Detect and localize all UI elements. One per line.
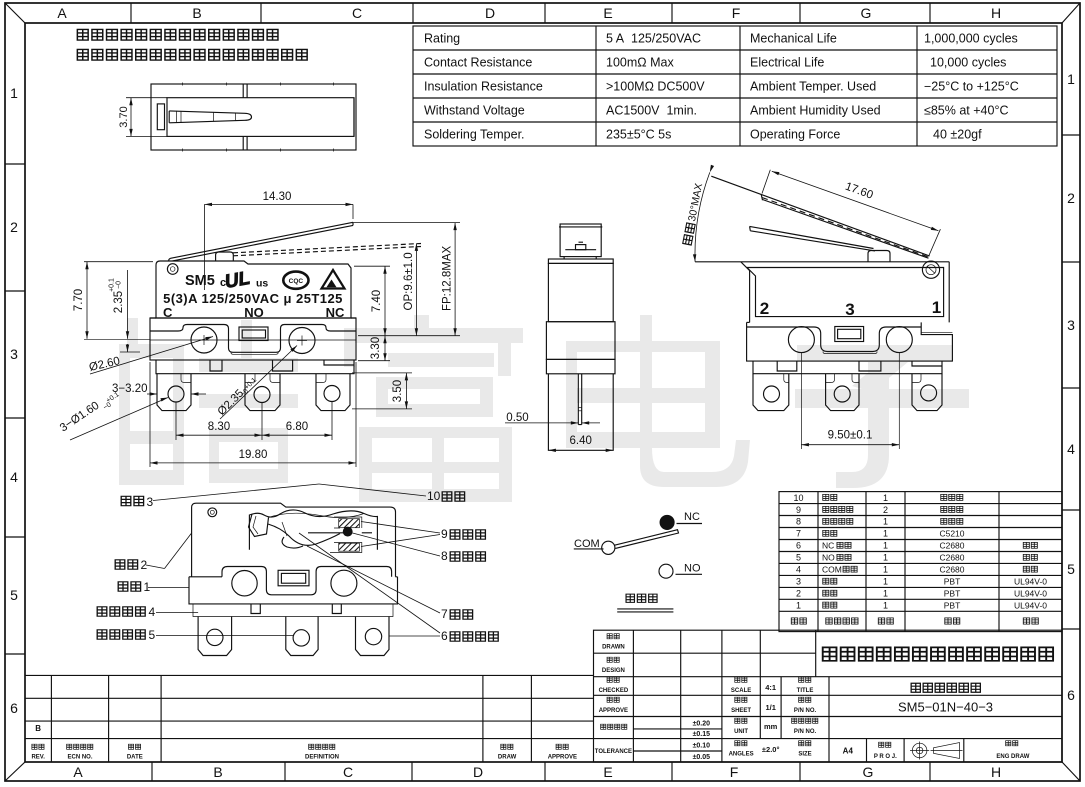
svg-text:ENG DRAW: ENG DRAW: [996, 754, 1029, 760]
svg-text:10: 10: [793, 493, 803, 503]
svg-text:us: us: [256, 278, 268, 290]
svg-text:Withstand Voltage: Withstand Voltage: [424, 104, 525, 118]
svg-text:A: A: [73, 764, 83, 780]
svg-text:DESIGN: DESIGN: [602, 668, 625, 674]
svg-text:NC: NC: [684, 511, 700, 523]
svg-text:C2680: C2680: [939, 565, 964, 575]
svg-text:CHECKED: CHECKED: [599, 688, 629, 694]
svg-text:NC: NC: [822, 541, 834, 551]
svg-text:Insulation Resistance: Insulation Resistance: [424, 80, 543, 94]
svg-text:H: H: [991, 5, 1001, 21]
svg-text:1/1: 1/1: [765, 703, 775, 712]
svg-text:3.70: 3.70: [118, 106, 130, 127]
svg-text:3: 3: [10, 346, 18, 362]
svg-text:4: 4: [1067, 441, 1075, 457]
svg-text:±0.20: ±0.20: [693, 721, 711, 728]
svg-text:1,000,000 cycles: 1,000,000 cycles: [924, 32, 1018, 46]
svg-text:1: 1: [10, 85, 18, 101]
svg-text:UL94V-0: UL94V-0: [1014, 577, 1047, 587]
svg-text:ANGLES: ANGLES: [729, 752, 754, 758]
svg-text:E: E: [603, 764, 612, 780]
svg-text:H: H: [991, 764, 1001, 780]
svg-text:F: F: [732, 5, 741, 21]
svg-text:9.50±0.1: 9.50±0.1: [828, 430, 873, 442]
svg-text:G: G: [861, 5, 872, 21]
svg-text:Soldering Temper.: Soldering Temper.: [424, 128, 525, 142]
svg-text:>100MΩ DC500V: >100MΩ DC500V: [606, 80, 705, 94]
svg-text:DRAWN: DRAWN: [602, 645, 625, 651]
svg-text:1: 1: [1067, 71, 1075, 87]
svg-text:APPROVE: APPROVE: [599, 708, 628, 714]
svg-text:235±5°C 5s: 235±5°C 5s: [606, 128, 671, 142]
svg-text:PBT: PBT: [944, 589, 961, 599]
svg-text:2: 2: [883, 505, 888, 515]
svg-text:1: 1: [883, 493, 888, 503]
svg-text:P/N NO.: P/N NO.: [794, 708, 817, 714]
svg-text:0.50: 0.50: [506, 412, 528, 424]
svg-text:8: 8: [441, 549, 448, 563]
svg-text:6: 6: [1067, 687, 1075, 703]
svg-text:2: 2: [760, 299, 769, 318]
svg-text:1: 1: [883, 553, 888, 563]
svg-text:Electrical Life: Electrical Life: [750, 56, 824, 70]
svg-text:C: C: [343, 764, 353, 780]
svg-text:100mΩ Max: 100mΩ Max: [606, 56, 674, 70]
svg-text:1: 1: [883, 601, 888, 611]
svg-text:−25°C to +125°C: −25°C to +125°C: [924, 80, 1019, 94]
svg-text:C: C: [352, 5, 362, 21]
svg-text:8.30: 8.30: [208, 421, 230, 433]
svg-text:19.80: 19.80: [239, 449, 268, 461]
svg-text:5(3)A 125/250VAC μ 25T125: 5(3)A 125/250VAC μ 25T125: [163, 291, 343, 306]
svg-text:2.35: 2.35: [113, 291, 125, 313]
svg-text:1: 1: [883, 565, 888, 575]
svg-text:1: 1: [883, 589, 888, 599]
svg-text:1: 1: [883, 541, 888, 551]
svg-text:3.30: 3.30: [370, 337, 382, 359]
svg-text:4:1: 4:1: [765, 683, 776, 692]
svg-text:APPROVE: APPROVE: [548, 755, 577, 761]
svg-text:F: F: [730, 764, 739, 780]
svg-text:Ambient Temper. Used: Ambient Temper. Used: [750, 80, 876, 94]
svg-text:9: 9: [796, 505, 801, 515]
svg-text:±0.05: ±0.05: [693, 754, 711, 761]
svg-text:3: 3: [845, 300, 854, 319]
svg-text:SM5: SM5: [185, 273, 215, 289]
svg-text:40 ±20gf: 40 ±20gf: [933, 128, 982, 142]
svg-text:7.70: 7.70: [73, 289, 85, 311]
svg-text:Operating Force: Operating Force: [750, 128, 840, 142]
svg-text:B: B: [35, 724, 41, 733]
svg-text:1: 1: [144, 580, 151, 594]
svg-text:DRAW: DRAW: [498, 755, 517, 761]
svg-text:PBT: PBT: [944, 601, 961, 611]
svg-text:5: 5: [1067, 561, 1075, 577]
svg-text:2: 2: [796, 589, 801, 599]
svg-text:5: 5: [796, 553, 801, 563]
svg-text:+0.1: +0.1: [109, 278, 116, 292]
svg-text:PBT: PBT: [944, 577, 961, 587]
svg-text:4: 4: [149, 605, 156, 619]
svg-text:−0: −0: [116, 281, 123, 289]
svg-text:6: 6: [441, 629, 448, 643]
svg-text:P R O J.: P R O J.: [874, 754, 897, 760]
svg-text:mm: mm: [764, 722, 778, 731]
svg-text:CQC: CQC: [289, 278, 304, 285]
svg-text:UL: UL: [223, 268, 252, 293]
svg-text:1: 1: [883, 577, 888, 587]
svg-text:±0.10: ±0.10: [693, 743, 711, 750]
svg-text:6.40: 6.40: [570, 435, 592, 447]
svg-text:COM: COM: [574, 538, 600, 550]
svg-text:UNIT: UNIT: [734, 729, 748, 735]
svg-text:P/N NO.: P/N NO.: [794, 729, 817, 735]
svg-text:Contact Resistance: Contact Resistance: [424, 56, 532, 70]
svg-text:Rating: Rating: [424, 32, 460, 46]
svg-text:10: 10: [427, 489, 441, 503]
svg-text:2: 2: [10, 219, 18, 235]
svg-text:3: 3: [1067, 317, 1075, 333]
svg-text:2: 2: [1067, 190, 1075, 206]
svg-text:ECN NO.: ECN NO.: [67, 755, 92, 761]
svg-text:D: D: [473, 764, 483, 780]
svg-text:COM: COM: [822, 565, 842, 575]
svg-text:DATE: DATE: [127, 755, 143, 761]
svg-text:8: 8: [796, 517, 801, 527]
svg-text:1: 1: [883, 517, 888, 527]
svg-text:4: 4: [10, 469, 18, 485]
svg-text:9: 9: [441, 527, 448, 541]
svg-text:±2.0°: ±2.0°: [762, 745, 780, 754]
svg-text:Ambient Humidity Used: Ambient Humidity Used: [750, 104, 881, 118]
svg-text:1: 1: [883, 529, 888, 539]
svg-text:SM5−01N−40−3: SM5−01N−40−3: [898, 700, 993, 715]
svg-text:UL94V-0: UL94V-0: [1014, 601, 1047, 611]
svg-text:TITLE: TITLE: [797, 688, 814, 694]
svg-text:±0.15: ±0.15: [693, 731, 711, 738]
svg-text:UL94V-0: UL94V-0: [1014, 589, 1047, 599]
svg-text:C2680: C2680: [939, 553, 964, 563]
svg-text:C2680: C2680: [939, 541, 964, 551]
svg-text:3.50: 3.50: [392, 380, 404, 402]
svg-text:OP:9.6±1.0: OP:9.6±1.0: [403, 252, 415, 310]
svg-text:1: 1: [932, 298, 941, 317]
svg-text:≤85% at +40°C: ≤85% at +40°C: [924, 104, 1008, 118]
svg-text:D: D: [485, 5, 495, 21]
svg-text:5: 5: [149, 628, 156, 642]
svg-text:SCALE: SCALE: [731, 688, 751, 694]
svg-text:14.30: 14.30: [263, 191, 292, 203]
svg-text:A4: A4: [843, 747, 854, 756]
svg-text:REV.: REV.: [31, 755, 45, 761]
svg-text:7: 7: [441, 607, 448, 621]
svg-text:5: 5: [10, 587, 18, 603]
svg-text:6: 6: [10, 700, 18, 716]
svg-text:FP:12.8MAX: FP:12.8MAX: [442, 245, 454, 311]
svg-text:10,000 cycles: 10,000 cycles: [930, 56, 1006, 70]
svg-text:SHEET: SHEET: [731, 708, 751, 714]
svg-text:C5210: C5210: [939, 529, 964, 539]
svg-text:NO: NO: [822, 553, 835, 563]
svg-text:E: E: [603, 5, 612, 21]
svg-text:G: G: [863, 764, 874, 780]
svg-text:5 A 125/250VAC: 5 A 125/250VAC: [606, 32, 701, 46]
svg-text:3: 3: [147, 495, 154, 509]
svg-text:4: 4: [796, 565, 801, 575]
svg-text:7.40: 7.40: [371, 290, 383, 312]
svg-text:A: A: [57, 5, 67, 21]
svg-text:AC1500V 1min.: AC1500V 1min.: [606, 104, 697, 118]
svg-text:6: 6: [796, 541, 801, 551]
svg-text:SIZE: SIZE: [798, 752, 811, 758]
svg-text:1: 1: [796, 601, 801, 611]
svg-text:B: B: [213, 764, 222, 780]
svg-text:6.80: 6.80: [286, 421, 308, 433]
svg-text:3: 3: [796, 577, 801, 587]
svg-text:TOLERANCE: TOLERANCE: [595, 749, 632, 755]
svg-text:NO: NO: [684, 563, 701, 575]
svg-text:B: B: [192, 5, 201, 21]
svg-text:7: 7: [796, 529, 801, 539]
svg-text:DEFINITION: DEFINITION: [305, 755, 339, 761]
svg-text:Mechanical Life: Mechanical Life: [750, 32, 837, 46]
